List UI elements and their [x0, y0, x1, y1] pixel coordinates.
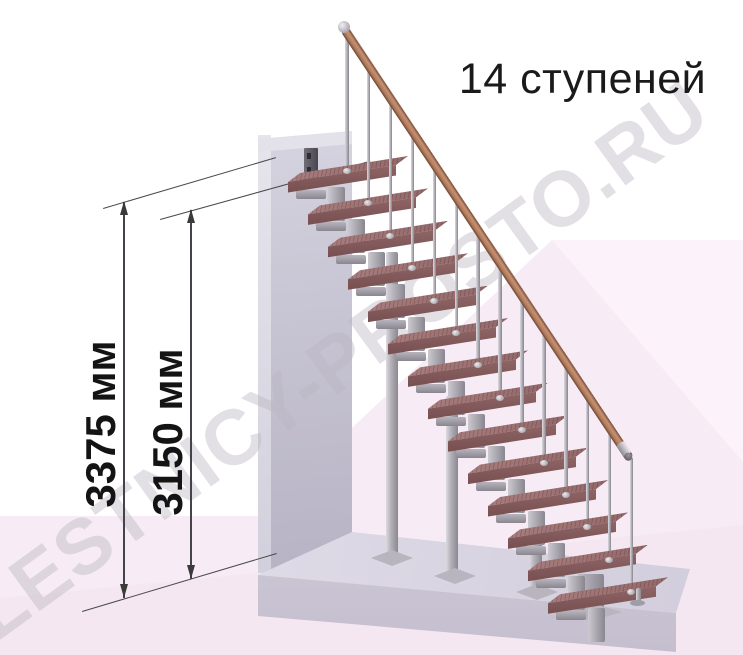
baluster-base-knob [452, 330, 460, 336]
baluster [476, 227, 480, 367]
baluster-base-knob [562, 492, 570, 498]
staircase-dimension-diagram: LESTNICY-PROSTO.RU 3375 мм 3150 мм 14 ст… [0, 0, 743, 655]
baluster-base-knob [343, 168, 351, 174]
baluster [498, 260, 502, 400]
baluster-base-knob [540, 460, 548, 466]
baluster [411, 128, 415, 270]
baluster [367, 62, 371, 205]
handrail-top-cap [338, 21, 350, 33]
baluster [586, 392, 590, 530]
baluster-base-knob [605, 557, 613, 563]
page-title: 14 ступеней [440, 55, 725, 104]
baluster-base-knob [496, 395, 504, 401]
bottom-tread-foot [630, 600, 645, 606]
baluster [542, 326, 546, 465]
baluster-base-knob [386, 233, 394, 239]
baluster-base-knob [430, 298, 438, 304]
tread [548, 577, 670, 614]
baluster [345, 30, 349, 174]
baluster [433, 161, 437, 302]
baluster [455, 194, 459, 335]
baluster-base-knob [518, 427, 526, 433]
baluster [520, 293, 524, 432]
baluster [389, 95, 393, 237]
baluster [630, 458, 634, 595]
baluster [564, 359, 568, 497]
baluster [608, 425, 612, 562]
